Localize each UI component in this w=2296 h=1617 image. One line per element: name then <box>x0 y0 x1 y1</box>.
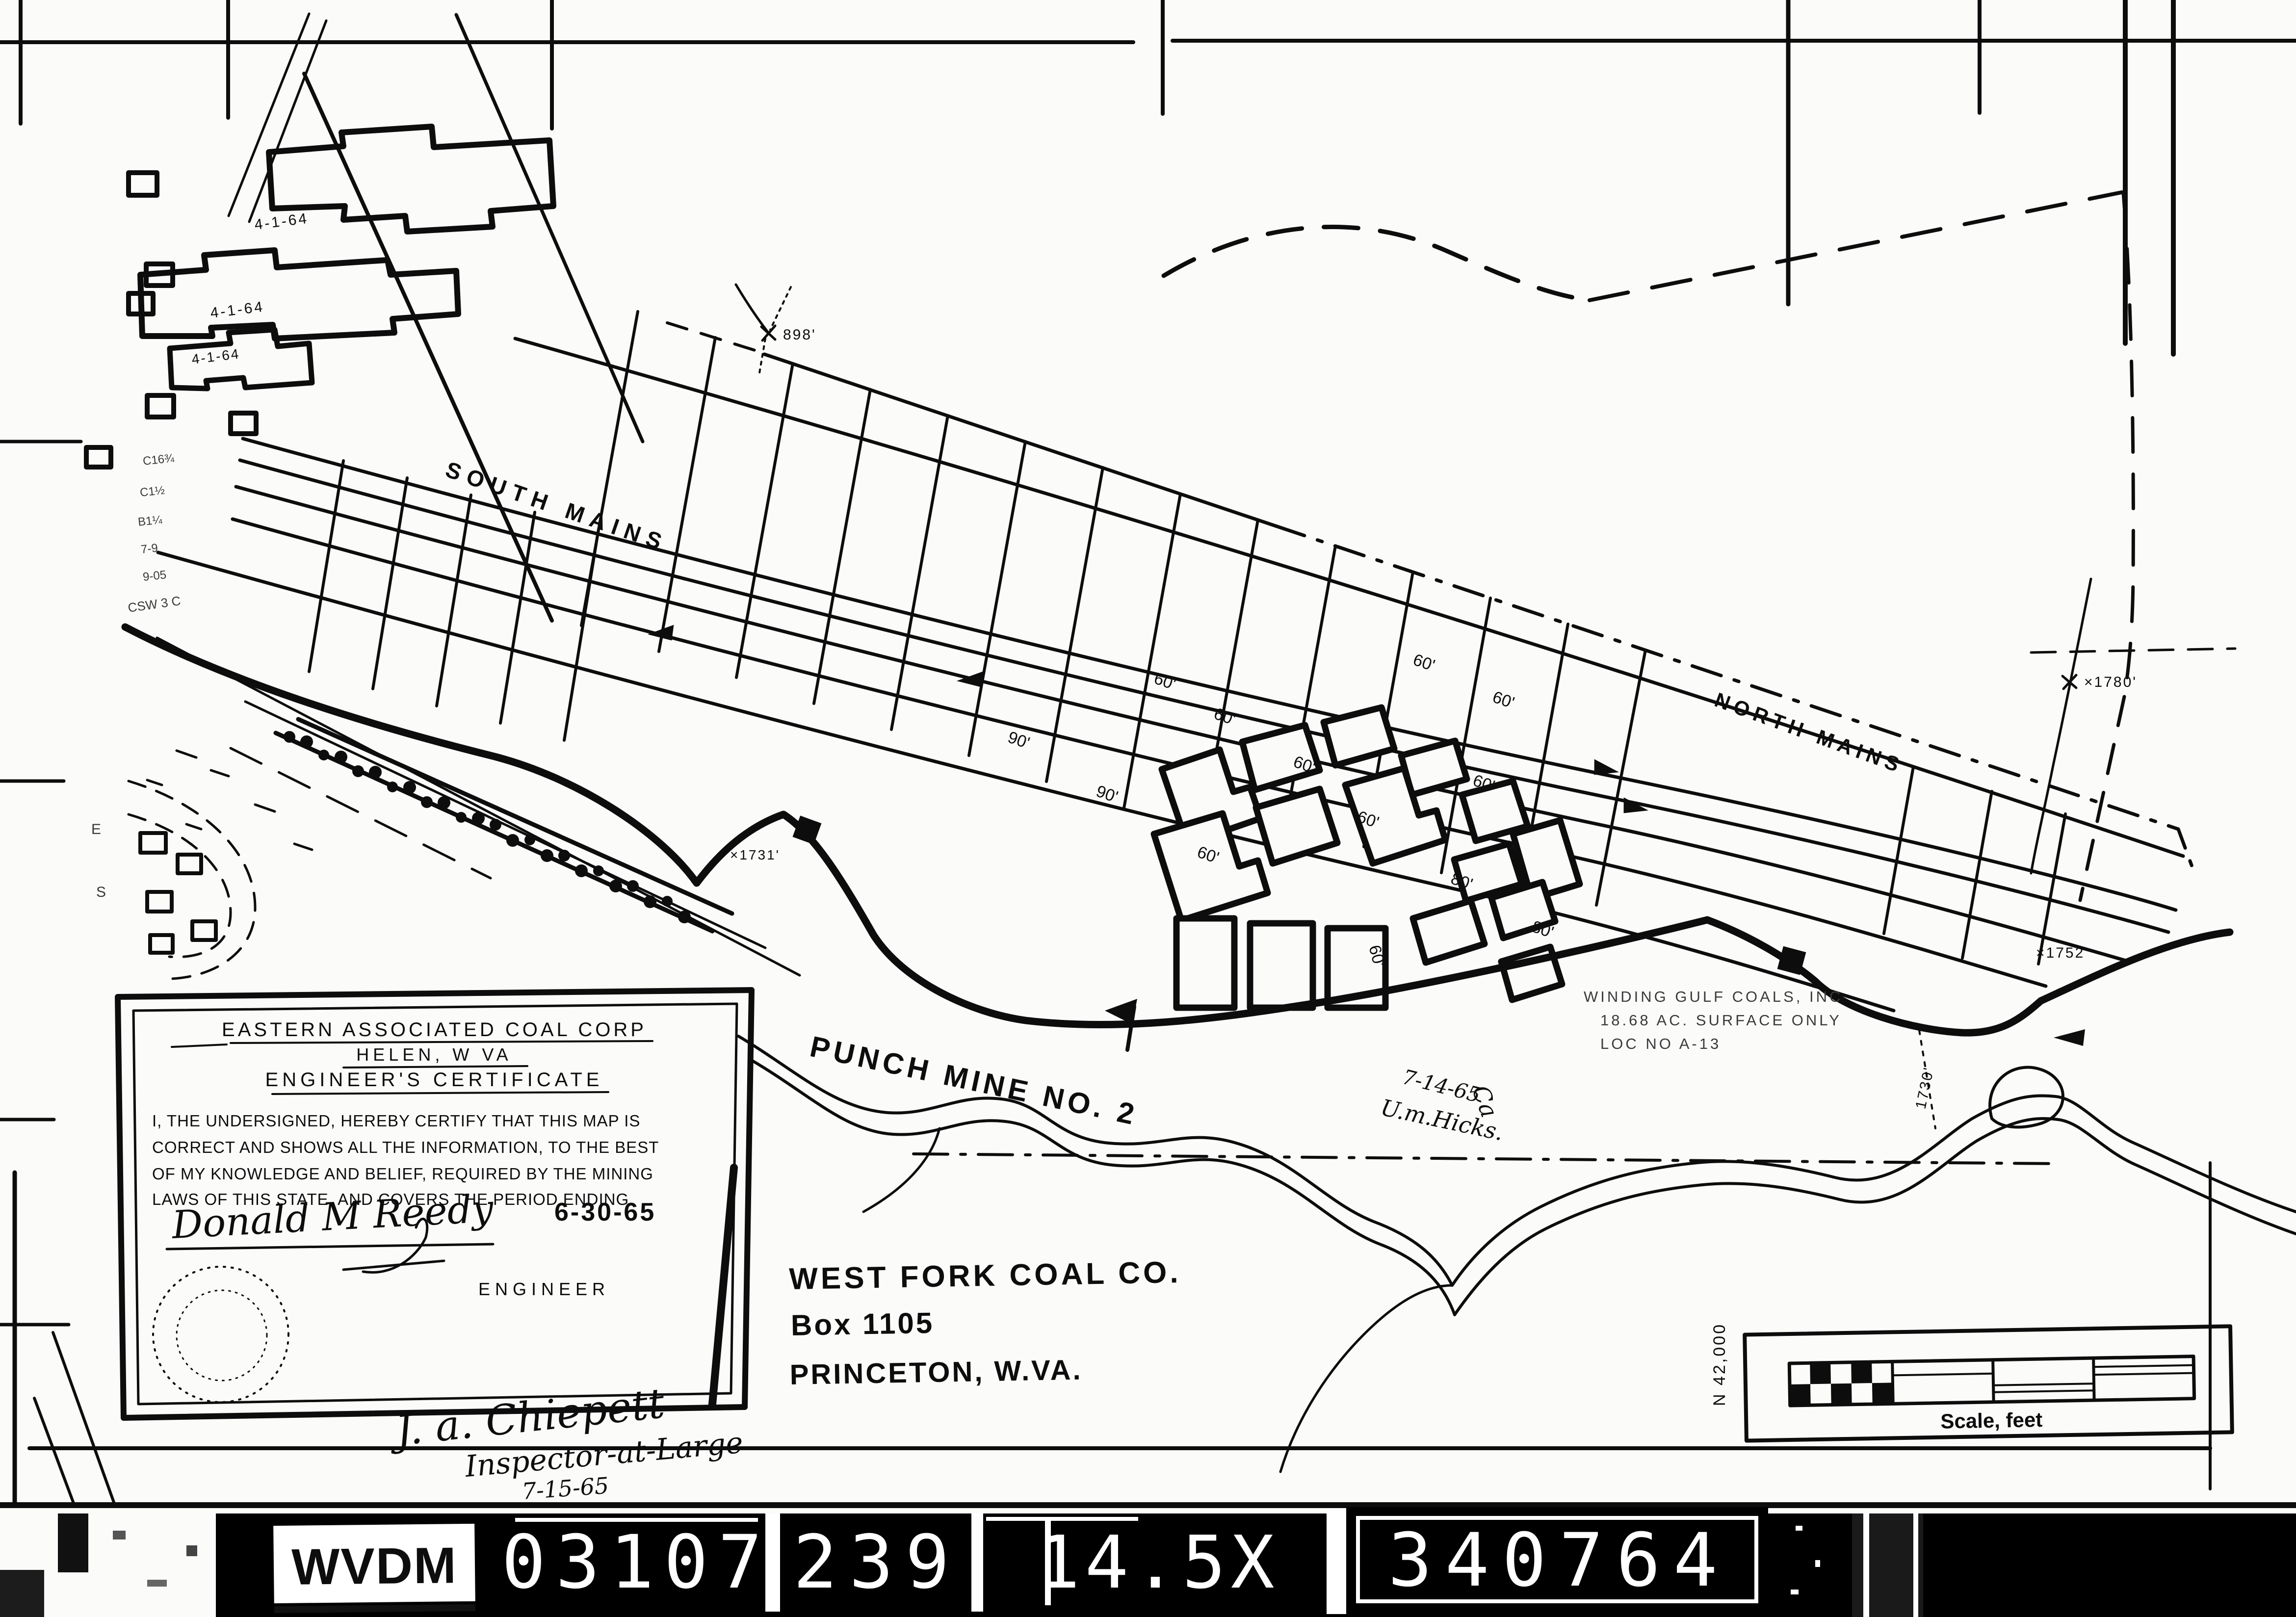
strip-noise <box>1815 1560 1820 1567</box>
panel-block <box>231 413 256 434</box>
elevation-1752: ×1752' <box>2036 945 2089 961</box>
panel-block <box>147 395 174 417</box>
svg-text:60': 60' <box>1490 688 1516 712</box>
panel-date: 4-1-64 <box>254 210 310 233</box>
owner-city: PRINCETON, W.VA. <box>789 1354 1083 1391</box>
scale-label: Scale, feet <box>1940 1408 2043 1433</box>
adjacent-owner-note: WINDING GULF COALS, INC 18.68 AC. SURFAC… <box>1584 988 1843 1052</box>
panel-block <box>86 447 111 467</box>
svg-text:B1¼: B1¼ <box>137 513 163 529</box>
period-ending-date: 6-30-65 <box>554 1198 656 1226</box>
certificate-company: EASTERN ASSOCIATED COAL CORP <box>222 1019 647 1041</box>
elevation-1731: ×1731' <box>730 847 780 862</box>
strip-background <box>1923 1513 2296 1617</box>
owner-address-block: WEST FORK COAL CO. Box 1105 PRINCETON, W… <box>788 1255 1183 1391</box>
svg-text:90': 90' <box>1005 728 1032 753</box>
adjacent-line1: WINDING GULF COALS, INC <box>1584 988 1843 1005</box>
strip-noise <box>1796 1526 1802 1531</box>
inspector-date: 7-15-65 <box>521 1472 610 1505</box>
svg-text:60': 60' <box>1211 704 1238 729</box>
owner-company: WEST FORK COAL CO. <box>789 1255 1181 1296</box>
mine-name-label: PUNCH MINE NO. 2 <box>807 1030 1141 1131</box>
certificate-location: HELEN, W VA <box>356 1044 512 1065</box>
film-code-4: 340764 <box>1388 1518 1730 1603</box>
certificate-body-line: OF MY KNOWLEDGE AND BELIEF, REQUIRED BY … <box>152 1165 653 1183</box>
agency-tile: WVDM <box>273 1524 475 1613</box>
margin-notes: C16¾ C1½ B1¼ 7-9 9-05 CSW 3 C E S <box>91 451 182 900</box>
certificate-title: ENGINEER'S CERTIFICATE <box>265 1069 603 1091</box>
scale-bar-dividers <box>1892 1358 2094 1404</box>
mains-line <box>515 339 2183 856</box>
strip-noise <box>113 1531 126 1539</box>
svg-text:60': 60' <box>1410 651 1437 675</box>
tributary <box>863 1128 939 1212</box>
strip-noise <box>1791 1590 1799 1594</box>
underline <box>272 1092 608 1094</box>
scale-bar-sublines <box>1893 1365 2194 1394</box>
notary-seal <box>153 1267 288 1402</box>
north-mains-label: NORTH MAINS <box>1712 688 1907 778</box>
film-code-2: 239 <box>793 1520 962 1605</box>
flow-arrow <box>2054 1029 2085 1046</box>
frame-left-ticks <box>0 442 81 1325</box>
panel-block <box>129 173 157 195</box>
svg-text:7-9: 7-9 <box>140 541 158 556</box>
roads-and-houses <box>129 781 255 979</box>
panel-date: 4-1-64 <box>191 346 241 367</box>
strip-noise <box>147 1580 167 1587</box>
svg-text:9-05: 9-05 <box>142 568 167 584</box>
hatched-band <box>147 638 800 975</box>
underline <box>343 1066 527 1068</box>
grid-northing-label: N 42,000 <box>1710 1323 1729 1406</box>
elevation-898: 898' <box>783 327 816 343</box>
south-mains-label: SOUTH MAINS <box>443 456 672 556</box>
road-double-line <box>229 14 326 222</box>
contour-dashed <box>1164 227 1590 300</box>
scale-bar-checker <box>1789 1361 1893 1406</box>
strip-gap <box>1863 1513 1869 1617</box>
workings-boundary-line <box>764 354 1276 526</box>
tile-gap <box>971 1513 983 1612</box>
strip-noise <box>58 1513 88 1572</box>
tributary <box>1280 1285 1452 1472</box>
svg-text:S: S <box>96 884 106 900</box>
agency-code: WVDM <box>291 1537 457 1596</box>
elevation-1730: 1730' <box>1913 1065 1937 1110</box>
frame-top-line <box>0 41 2296 42</box>
sheet-corner-scratches <box>34 1332 114 1503</box>
svg-text:C16¾: C16¾ <box>142 451 175 468</box>
strip-noise <box>0 1570 44 1617</box>
mine-map-sheet: SOUTH MAINS NORTH MAINS PUNCH MINE NO. 2… <box>0 0 2296 1617</box>
owner-address: Box 1105 <box>790 1306 934 1342</box>
contour-dashed <box>2080 697 2124 900</box>
certificate-body-line: I, THE UNDERSIGNED, HEREBY CERTIFY THAT … <box>152 1112 640 1130</box>
adjacent-line3: LOC NO A-13 <box>1600 1035 1721 1052</box>
svg-text:C1½: C1½ <box>139 484 165 499</box>
strip-noise <box>186 1545 197 1556</box>
film-code-1: 03107 <box>501 1520 772 1605</box>
mains-line <box>233 519 2046 986</box>
strip-background <box>1852 1513 1923 1617</box>
strip-gap <box>1913 1513 1918 1617</box>
engineers-certificate-box: EASTERN ASSOCIATED COAL CORP HELEN, W VA… <box>118 990 752 1418</box>
panel-outline <box>140 250 458 339</box>
film-id-strip: WVDM 03107 239 14.5X 340764 <box>0 1507 2296 1617</box>
svg-text:CSW 3 C: CSW 3 C <box>127 593 182 615</box>
speckle-dashes <box>147 751 312 850</box>
certificate-body-line: CORRECT AND SHOWS ALL THE INFORMATION, T… <box>152 1138 659 1156</box>
worked-out-panels <box>86 14 643 621</box>
svg-text:E: E <box>91 821 101 837</box>
contour-dashed <box>1590 192 2122 300</box>
scale-bar-box: Scale, feet <box>1745 1326 2232 1440</box>
tile-gap <box>1327 1511 1346 1614</box>
panel-date: 4-1-64 <box>209 299 265 321</box>
engineer-title: ENGINEER <box>478 1279 610 1299</box>
adjacent-line2: 18.68 AC. SURFACE ONLY <box>1600 1012 1842 1029</box>
elevation-1780: ×1780' <box>2084 674 2137 690</box>
film-code-3: 14.5X <box>1036 1520 1279 1605</box>
